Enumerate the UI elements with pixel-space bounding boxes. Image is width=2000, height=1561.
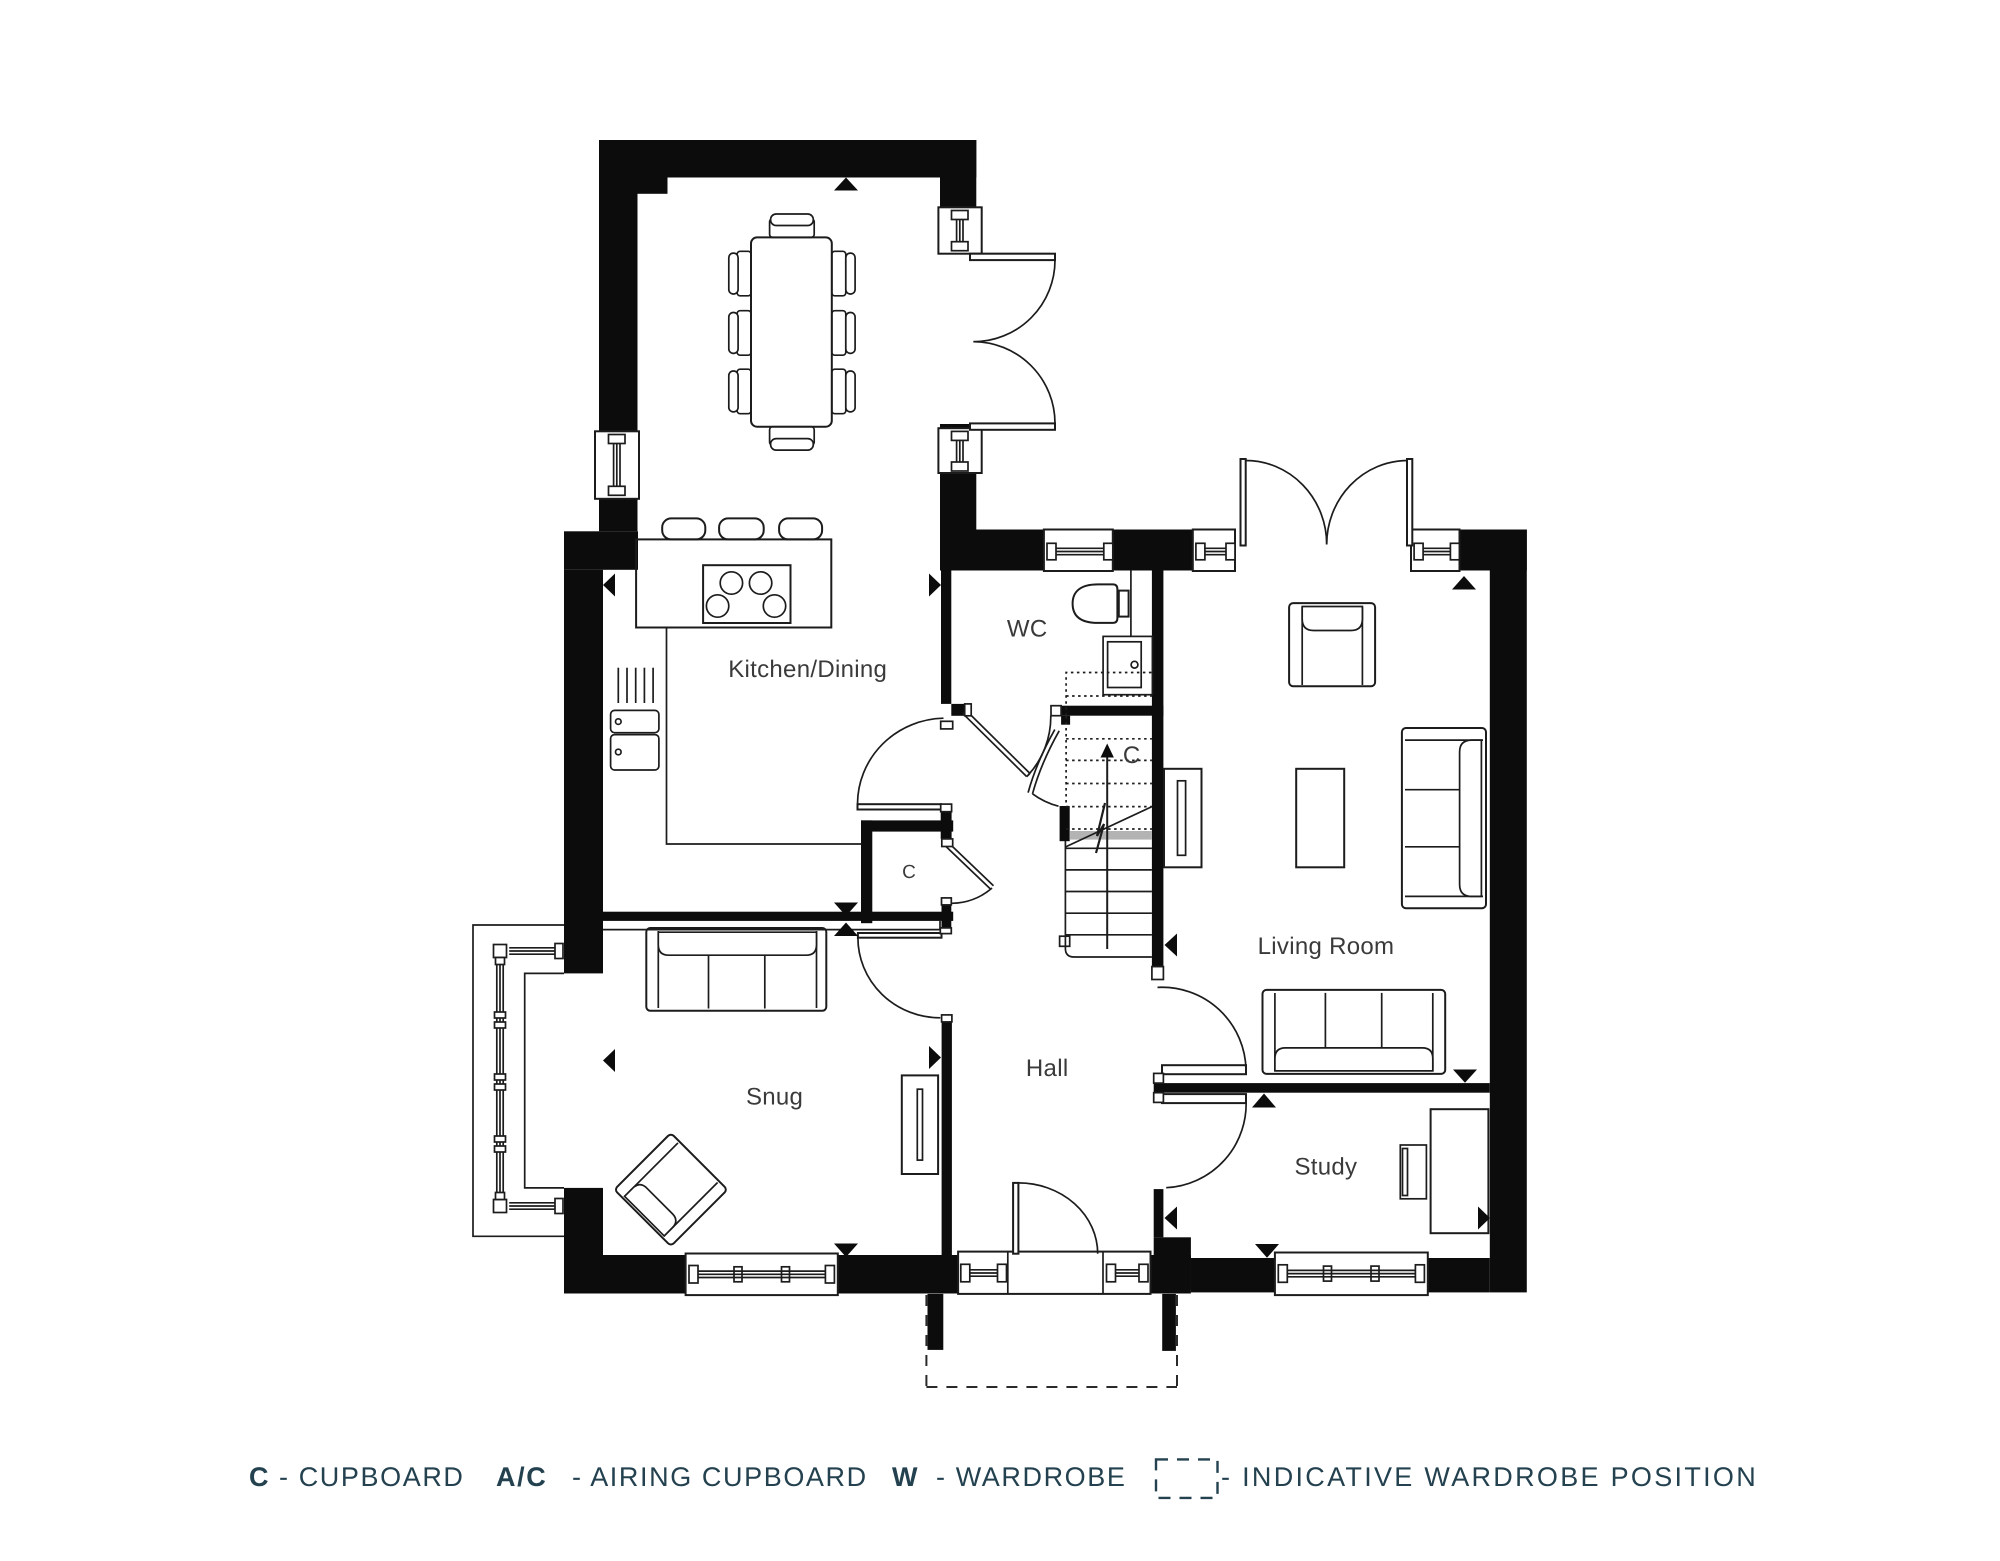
- svg-text:Kitchen/Dining: Kitchen/Dining: [728, 656, 887, 683]
- svg-text:Snug: Snug: [746, 1084, 803, 1111]
- svg-text:Study: Study: [1294, 1154, 1357, 1181]
- svg-text:WC: WC: [1007, 616, 1048, 643]
- svg-text:- AIRING CUPBOARD: - AIRING CUPBOARD: [572, 1462, 868, 1492]
- svg-text:C: C: [1123, 742, 1141, 769]
- svg-text:- CUPBOARD: - CUPBOARD: [279, 1462, 465, 1492]
- svg-text:C: C: [902, 862, 916, 883]
- svg-text:W: W: [892, 1462, 919, 1492]
- svg-text:- INDICATIVE WARDROBE POSITION: - INDICATIVE WARDROBE POSITION: [1221, 1462, 1758, 1492]
- svg-text:A/C: A/C: [496, 1462, 547, 1492]
- svg-text:Living Room: Living Room: [1258, 933, 1395, 960]
- svg-text:Hall: Hall: [1026, 1055, 1069, 1082]
- svg-text:C: C: [249, 1462, 270, 1492]
- svg-text:- WARDROBE: - WARDROBE: [936, 1462, 1127, 1492]
